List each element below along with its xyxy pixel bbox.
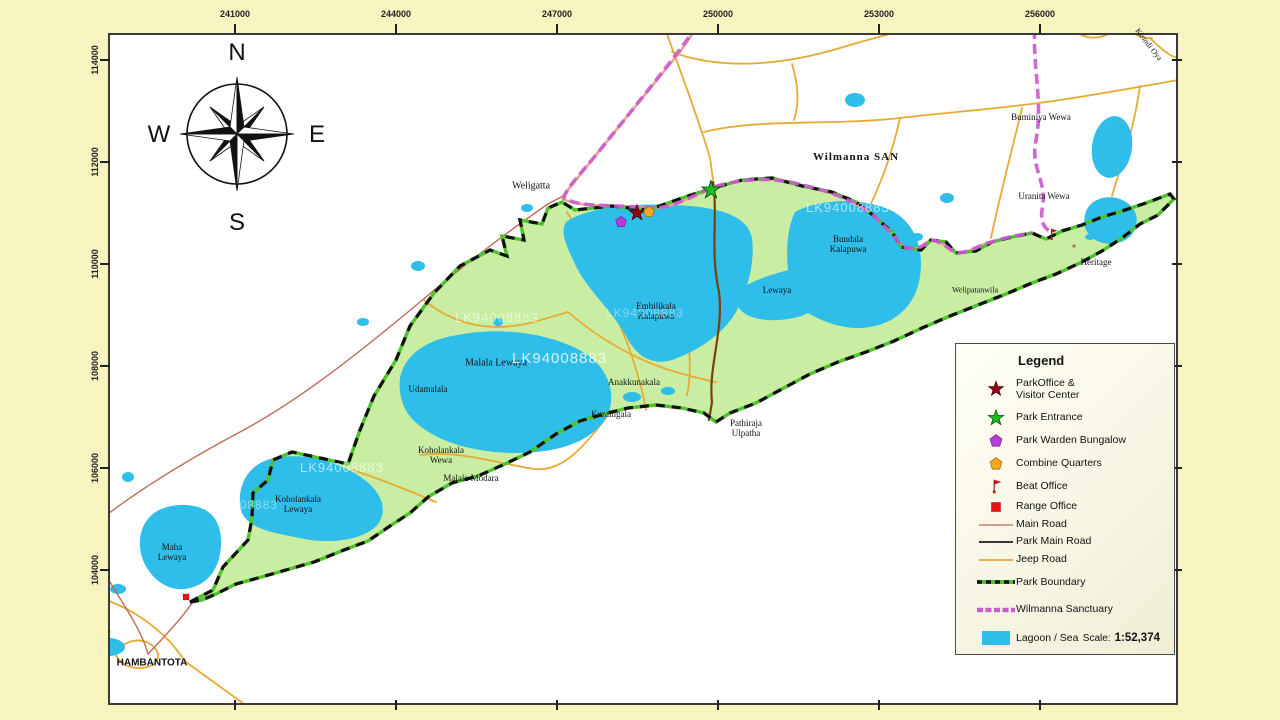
axis-label-left: 110000	[90, 249, 100, 279]
legend-item-park-entrance: Park Entrance	[956, 406, 1174, 429]
legend-item-label: Jeep Road	[1016, 553, 1067, 565]
legend-item-combine-quarters: Combine Quarters	[956, 452, 1174, 475]
compass-rose-icon: N S W E	[145, 30, 335, 240]
park-boundary-icon	[976, 576, 1016, 588]
legend-item-label: Park Warden Bungalow	[1016, 434, 1126, 446]
map-label-welipatanwila: Welipatanwila	[952, 287, 998, 296]
legend-box: Legend ParkOffice & Visitor CenterPark E…	[955, 343, 1175, 655]
legend-rows: ParkOffice & Visitor CenterPark Entrance…	[956, 372, 1174, 652]
main-road-icon	[976, 519, 1016, 531]
legend-item-label: Park Boundary	[1016, 576, 1085, 588]
axis-label-top: 241000	[220, 9, 250, 19]
legend-item-park-office: ParkOffice & Visitor Center	[956, 372, 1174, 406]
watermark-text: LK94008883	[606, 306, 684, 320]
axis-label-top: 253000	[864, 9, 894, 19]
map-label-buminiya-wewa: Buminiya Wewa	[1011, 112, 1071, 122]
scale-value: 1:52,374	[1115, 632, 1160, 644]
axis-label-top: 250000	[703, 9, 733, 19]
axis-tick	[1039, 24, 1041, 34]
axis-tick	[100, 161, 110, 163]
axis-tick	[1172, 59, 1182, 61]
legend-item-wilmanna-sanctuary: Wilmanna Sanctuary	[956, 595, 1174, 624]
axis-tick	[100, 467, 110, 469]
map-label-heritage: Heritage	[1081, 257, 1112, 267]
axis-label-left: 104000	[90, 555, 100, 585]
marker-range-office	[180, 591, 192, 603]
legend-item-label: Lagoon / Sea	[1016, 632, 1078, 644]
watermark-text: LK94008883	[300, 460, 384, 475]
legend-title: Legend	[1018, 353, 1174, 368]
map-label-lewaya: Lewaya	[763, 285, 791, 295]
map-label-koholankala-lewaya: Koholankala Lewaya	[275, 494, 321, 514]
map-label-wilmanna-san: Wilmanna SAN	[813, 151, 899, 163]
scale-label: Scale:	[1083, 633, 1111, 644]
watermark-text: LK94008883	[512, 350, 607, 367]
marker-beat-office	[1046, 227, 1061, 242]
marker-combine-quarters	[641, 204, 657, 220]
map-label-udamalala: Udamalala	[409, 384, 448, 394]
watermark-text: LK94008883	[455, 310, 539, 325]
map-label-maha-lewaya: Maha Lewaya	[158, 542, 186, 562]
park-office-icon	[976, 380, 1016, 398]
axis-tick	[1039, 700, 1041, 710]
axis-label-left: 108000	[90, 351, 100, 381]
legend-item-label: Park Main Road	[1016, 535, 1091, 547]
legend-item-label: Wilmanna Sanctuary	[1016, 603, 1113, 615]
axis-tick	[100, 59, 110, 61]
park-main-road-icon	[976, 536, 1016, 548]
map-label-pathiraja-ulpatha: Pathiraja Ulpatha	[730, 418, 762, 438]
watermark-text: LK94008883	[806, 200, 890, 215]
axis-label-left: 106000	[90, 453, 100, 483]
axis-tick	[878, 700, 880, 710]
marker-site-dot	[1070, 242, 1078, 250]
wilmanna-sanctuary-icon	[976, 604, 1016, 616]
map-label-anakkunakala: Anakkunakala	[608, 377, 660, 387]
axis-label-top: 247000	[542, 9, 572, 19]
legend-item-jeep-road: Jeep Road	[956, 550, 1174, 569]
marker-park-entrance	[701, 180, 722, 201]
axis-tick	[717, 24, 719, 34]
axis-label-top: 244000	[381, 9, 411, 19]
axis-label-left: 114000	[90, 45, 100, 75]
legend-item-park-main-road: Park Main Road	[956, 533, 1174, 550]
scale-indicator: Scale:1:52,374	[1083, 632, 1160, 644]
lagoon-sea-icon	[976, 630, 1016, 646]
lagoon-buminiya-wewa	[1088, 114, 1136, 181]
axis-tick	[100, 263, 110, 265]
map-label-bundala-kalapuwa: Bundala Kalapuwa	[830, 234, 866, 254]
axis-tick	[100, 569, 110, 571]
map-label-weligatta: Weligatta	[512, 180, 550, 191]
compass-west-label: W	[148, 121, 171, 148]
legend-item-label: Combine Quarters	[1016, 457, 1102, 469]
axis-tick	[234, 700, 236, 710]
axis-tick	[100, 365, 110, 367]
map-label-malala-modara: Malala Modara	[443, 473, 498, 483]
map-label-uranita-wewa: Uranita Wewa	[1018, 191, 1069, 201]
legend-item-label: Main Road	[1016, 518, 1067, 530]
legend-item-beat-office: Beat Office	[956, 475, 1174, 497]
legend-item-label: ParkOffice & Visitor Center	[1016, 377, 1079, 401]
axis-tick	[556, 700, 558, 710]
jeep-road-icon	[976, 554, 1016, 566]
range-office-icon	[976, 498, 1016, 516]
map-label-koholankala-wewa: Koholankala Wewa	[418, 445, 464, 465]
axis-tick	[556, 24, 558, 34]
park-entrance-icon	[976, 409, 1016, 427]
legend-item-warden-bungalow: Park Warden Bungalow	[956, 429, 1174, 452]
axis-tick	[717, 700, 719, 710]
axis-tick	[395, 24, 397, 34]
bundala-park-map: N S W E 24100024400024700025000025300025…	[0, 0, 1280, 720]
axis-label-left: 112000	[90, 147, 100, 177]
axis-tick	[1172, 263, 1182, 265]
legend-item-label: Range Office	[1016, 500, 1077, 512]
axis-tick	[1172, 161, 1182, 163]
axis-tick	[395, 700, 397, 710]
legend-item-range-office: Range Office	[956, 497, 1174, 516]
compass-south-label: S	[229, 209, 245, 236]
combine-quarters-icon	[976, 455, 1016, 473]
legend-item-park-boundary: Park Boundary	[956, 569, 1174, 595]
marker-warden-bungalow	[613, 214, 629, 230]
legend-item-label: Park Entrance	[1016, 411, 1083, 423]
legend-item-label: Beat Office	[1016, 480, 1068, 492]
legend-item-main-road: Main Road	[956, 516, 1174, 533]
beat-office-icon	[976, 477, 1016, 495]
axis-label-top: 256000	[1025, 9, 1055, 19]
warden-bungalow-icon	[976, 432, 1016, 450]
compass-east-label: E	[309, 121, 325, 148]
map-label-hambantota: HAMBANTOTA	[117, 657, 188, 668]
watermark-text: LK94008883	[200, 498, 278, 512]
compass-north-label: N	[228, 39, 245, 66]
map-label-kuralugala: Kuralugala	[591, 409, 631, 419]
axis-tick	[878, 24, 880, 34]
